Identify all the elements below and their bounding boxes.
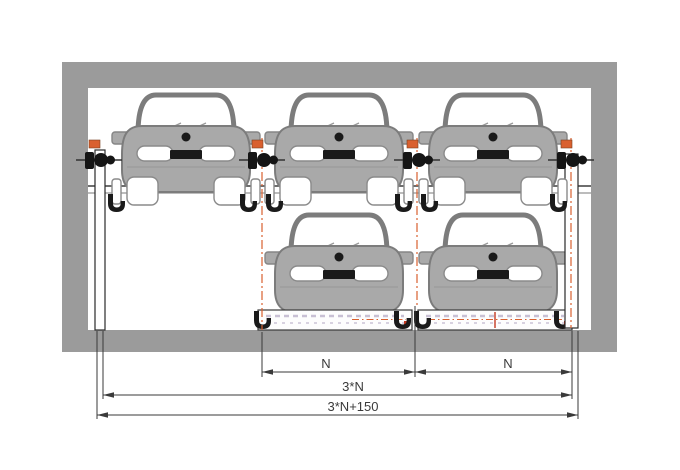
arrowhead	[561, 392, 572, 398]
right-wall	[591, 62, 617, 352]
arrowhead	[262, 369, 273, 375]
dim-label-n-left: N	[321, 356, 330, 371]
arrowhead	[415, 369, 426, 375]
pallet-frame	[258, 310, 412, 330]
car-lower-1	[265, 215, 413, 316]
dim-label-3n150: 3*N+150	[328, 399, 379, 414]
arrowhead	[567, 412, 578, 418]
left-wall	[62, 62, 88, 352]
lift-post-left	[95, 150, 105, 330]
puzzle-parking-diagram: N N 3*N 3*N+150	[0, 0, 680, 470]
ground-pallet-right	[418, 310, 572, 330]
car-lower-2	[419, 215, 567, 316]
arrowhead	[97, 412, 108, 418]
floor-slab	[62, 330, 617, 352]
ceiling-wall	[62, 62, 617, 88]
ground-pallet-left	[258, 310, 412, 330]
arrowhead	[561, 369, 572, 375]
dim-label-n-right: N	[503, 356, 512, 371]
arrowhead	[404, 369, 415, 375]
diagram-canvas: N N 3*N 3*N+150	[0, 0, 680, 470]
dim-label-3n: 3*N	[342, 379, 364, 394]
arrowhead	[103, 392, 114, 398]
